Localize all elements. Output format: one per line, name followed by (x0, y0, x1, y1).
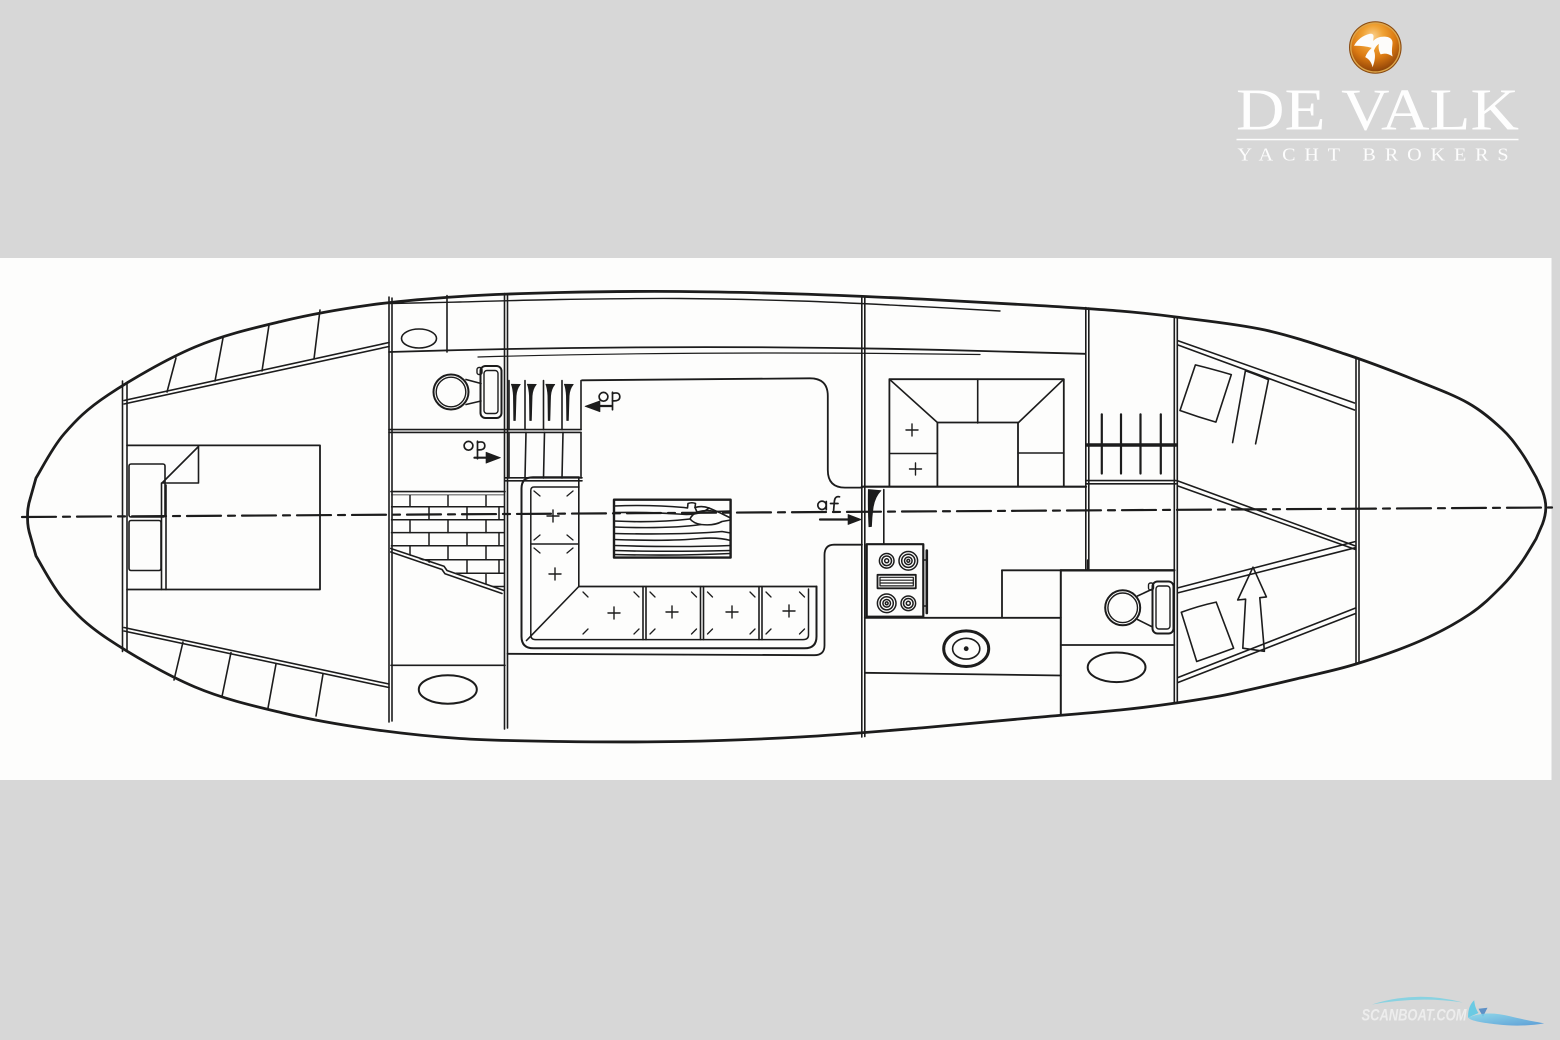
svg-text:SCANBOAT.COM: SCANBOAT.COM (1362, 1007, 1468, 1025)
svg-text:YACHT BROKERS: YACHT BROKERS (1238, 145, 1518, 165)
svg-text:DE VALK: DE VALK (1236, 77, 1519, 143)
